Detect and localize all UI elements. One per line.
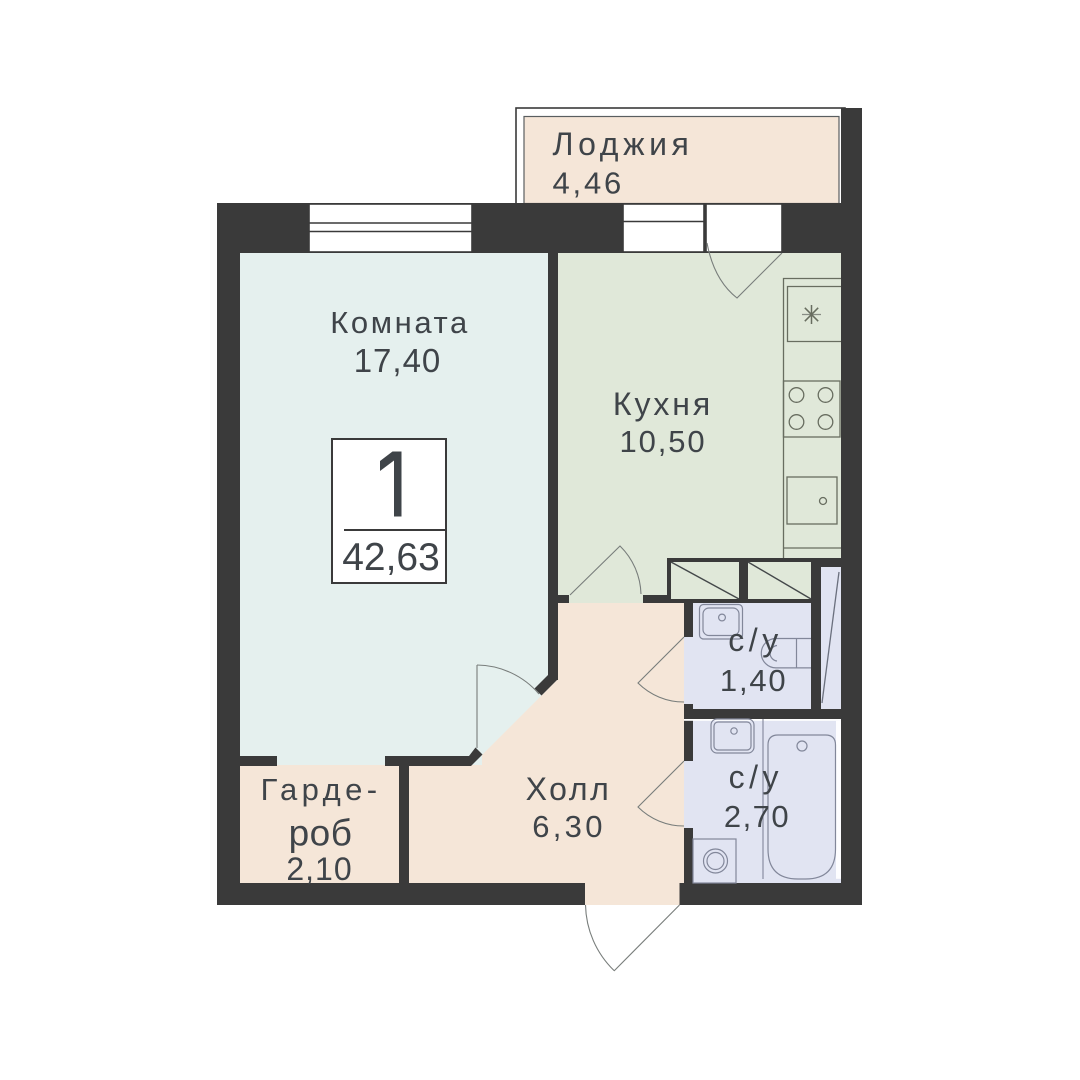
- svg-text:Лоджия: Лоджия: [553, 126, 694, 162]
- svg-text:роб: роб: [289, 813, 353, 854]
- svg-text:10,50: 10,50: [619, 424, 706, 459]
- svg-text:с/у: с/у: [728, 622, 782, 658]
- svg-text:2,10: 2,10: [286, 851, 352, 887]
- svg-text:17,40: 17,40: [354, 342, 442, 379]
- svg-text:6,30: 6,30: [532, 809, 606, 844]
- svg-text:Кухня: Кухня: [613, 386, 713, 422]
- svg-text:4,46: 4,46: [553, 166, 625, 201]
- svg-text:42,63: 42,63: [342, 536, 440, 579]
- svg-text:с/у: с/у: [729, 759, 783, 795]
- svg-text:Гарде-: Гарде-: [261, 772, 382, 807]
- svg-text:Холл: Холл: [526, 771, 612, 807]
- svg-text:2,70: 2,70: [724, 799, 790, 834]
- svg-text:Комната: Комната: [330, 305, 470, 340]
- svg-text:1,40: 1,40: [720, 663, 788, 698]
